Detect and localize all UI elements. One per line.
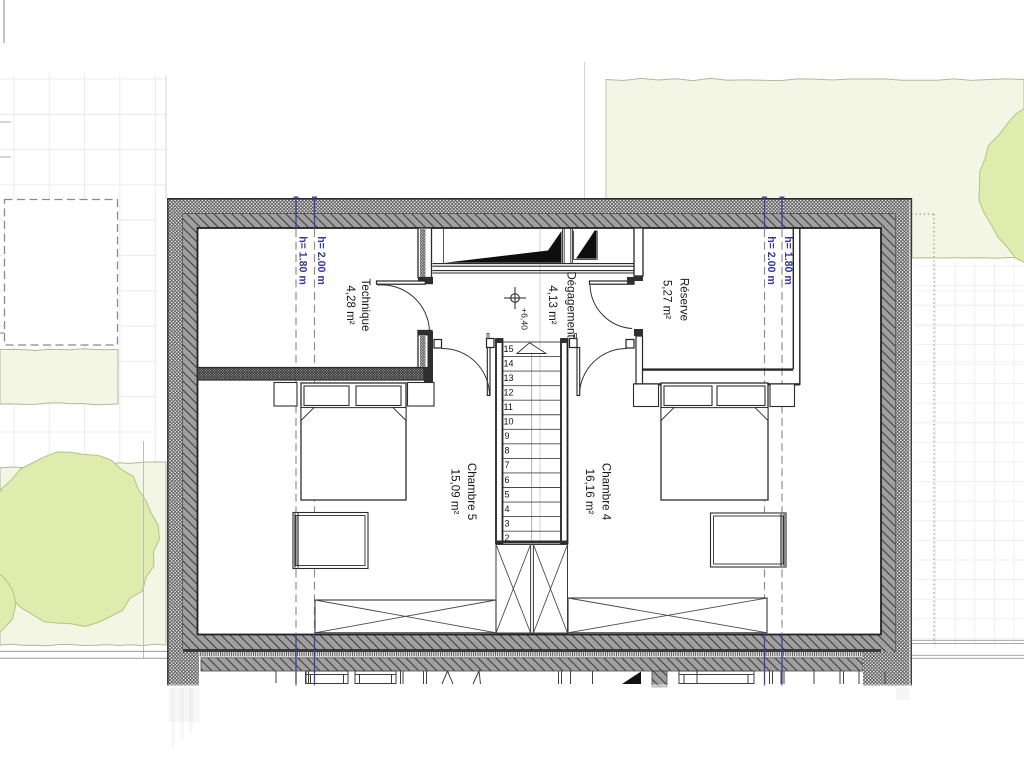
svg-text:13: 13 <box>504 373 514 383</box>
svg-text:15: 15 <box>504 344 514 354</box>
svg-text:Chambre 4: Chambre 4 <box>600 463 613 521</box>
svg-text:12: 12 <box>504 387 514 397</box>
svg-text:6: 6 <box>505 475 510 485</box>
svg-text:Chambre 5: Chambre 5 <box>465 463 478 520</box>
svg-text:11: 11 <box>504 402 513 412</box>
svg-text:8: 8 <box>505 446 510 456</box>
svg-text:5,27 m²: 5,27 m² <box>661 280 674 319</box>
svg-text:4,13 m²: 4,13 m² <box>546 285 559 324</box>
svg-text:14: 14 <box>504 358 514 368</box>
svg-text:h= 1.80 m: h= 1.80 m <box>782 236 794 285</box>
svg-text:+6,40: +6,40 <box>520 308 530 330</box>
svg-text:h= 2.00 m: h= 2.00 m <box>315 236 327 285</box>
svg-text:h= 2.00 m: h= 2.00 m <box>765 236 777 285</box>
svg-text:4: 4 <box>505 504 510 514</box>
svg-text:15,09 m²: 15,09 m² <box>449 469 462 515</box>
svg-text:Réserve: Réserve <box>678 278 691 321</box>
svg-text:9: 9 <box>505 431 510 441</box>
svg-text:Dégagement: Dégagement <box>565 271 578 338</box>
svg-text:7: 7 <box>505 460 510 470</box>
svg-text:5: 5 <box>505 489 510 499</box>
svg-text:10: 10 <box>504 417 514 427</box>
svg-text:h= 1.80 m: h= 1.80 m <box>297 236 309 285</box>
svg-text:3: 3 <box>505 518 510 528</box>
svg-text:4,28 m²: 4,28 m² <box>344 285 357 324</box>
svg-text:16,16 m²: 16,16 m² <box>583 469 596 515</box>
svg-text:Technique: Technique <box>359 279 372 332</box>
